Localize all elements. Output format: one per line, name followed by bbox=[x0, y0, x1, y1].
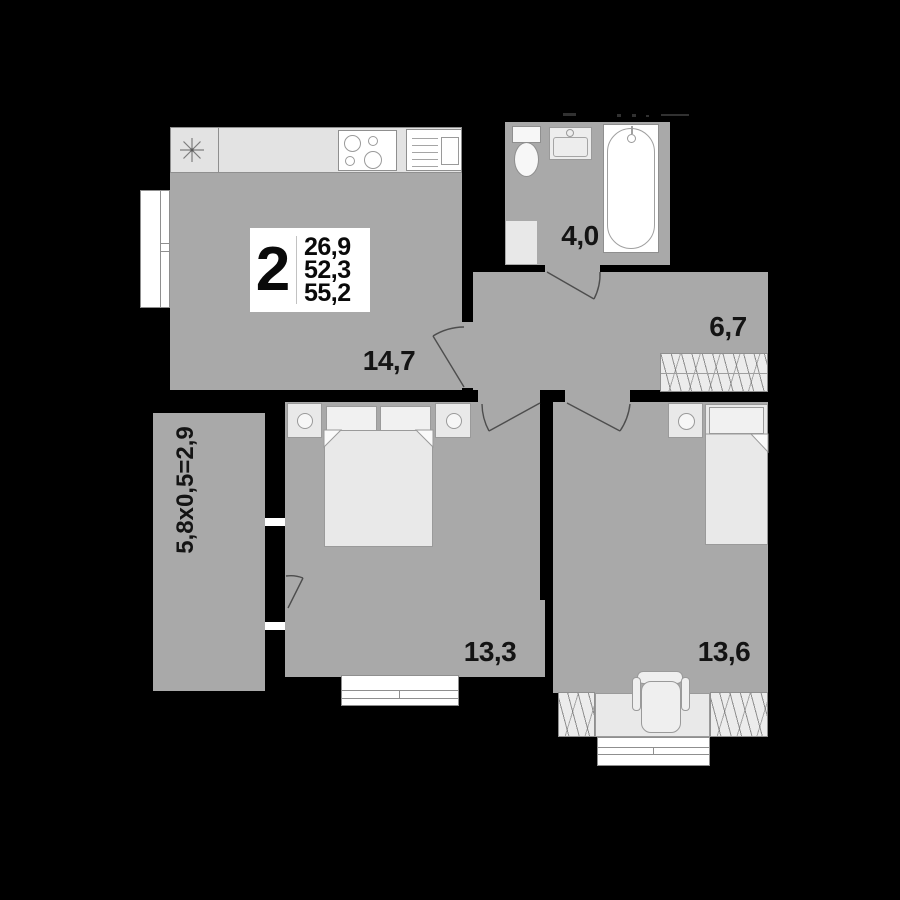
chair-armrest bbox=[632, 677, 641, 711]
cooktop-icon bbox=[338, 130, 397, 171]
wardrobe-hatch-icon bbox=[660, 353, 768, 392]
doorway-bathroom-hallway bbox=[545, 265, 600, 274]
floor-plan: 2 26,9 52,3 55,2 14,7 4,0 6,7 bbox=[0, 0, 900, 900]
bathtub-icon bbox=[603, 124, 659, 253]
bedroom-2-window-icon bbox=[597, 737, 710, 766]
doorway-hallway-bedroom-1 bbox=[478, 390, 540, 402]
balcony-area-label: 5,8x0,5=2,9 bbox=[172, 426, 200, 553]
chair-seat bbox=[641, 681, 681, 733]
bedroom-1-area-label: 13,3 bbox=[464, 636, 517, 668]
cropped-text-remnant bbox=[617, 114, 621, 117]
apartment-info-box: 2 26,9 52,3 55,2 bbox=[250, 228, 370, 312]
area-value-3: 55,2 bbox=[304, 282, 351, 305]
doorway-kitchen-hallway bbox=[462, 322, 473, 388]
room-balcony bbox=[153, 413, 265, 691]
pillow-icon bbox=[326, 406, 377, 433]
wardrobe-hatch-icon bbox=[558, 692, 595, 737]
wardrobe-hatch-icon bbox=[710, 692, 768, 737]
pillow-icon bbox=[380, 406, 431, 433]
bedroom-1-window-icon bbox=[341, 675, 459, 706]
kitchen-window-icon bbox=[140, 190, 170, 308]
doorway-hallway-bedroom-2 bbox=[565, 390, 630, 402]
toilet-bowl bbox=[514, 142, 539, 177]
bedroom-2-area-label: 13,6 bbox=[698, 636, 751, 668]
rooms-count: 2 bbox=[250, 239, 296, 301]
double-bed-icon bbox=[324, 430, 433, 547]
chair-armrest bbox=[681, 677, 690, 711]
cropped-text-remnant bbox=[563, 113, 576, 116]
cropped-text-remnant bbox=[661, 114, 689, 116]
nightstand-icon bbox=[668, 403, 703, 438]
balcony-door-jamb bbox=[265, 518, 285, 526]
cropped-text-remnant bbox=[632, 114, 636, 117]
single-bed-icon bbox=[705, 404, 768, 545]
appliance-icon bbox=[506, 221, 537, 264]
bathroom-area-label: 4,0 bbox=[561, 220, 598, 252]
hallway-area-label: 6,7 bbox=[709, 311, 746, 343]
room-bedroom-1-step bbox=[540, 600, 545, 677]
nightstand-icon bbox=[287, 403, 322, 438]
pillow-icon bbox=[709, 407, 764, 434]
kitchen-area-label: 14,7 bbox=[363, 345, 416, 377]
balcony-door-jamb bbox=[265, 622, 285, 630]
kitchen-sink-icon bbox=[406, 129, 462, 171]
nightstand-icon bbox=[435, 403, 471, 438]
cropped-text-remnant bbox=[646, 115, 649, 117]
washbasin-icon bbox=[549, 127, 592, 160]
kitchen-counter-divider bbox=[218, 128, 219, 172]
toilet-icon bbox=[512, 126, 541, 143]
sink-basin bbox=[441, 137, 459, 165]
